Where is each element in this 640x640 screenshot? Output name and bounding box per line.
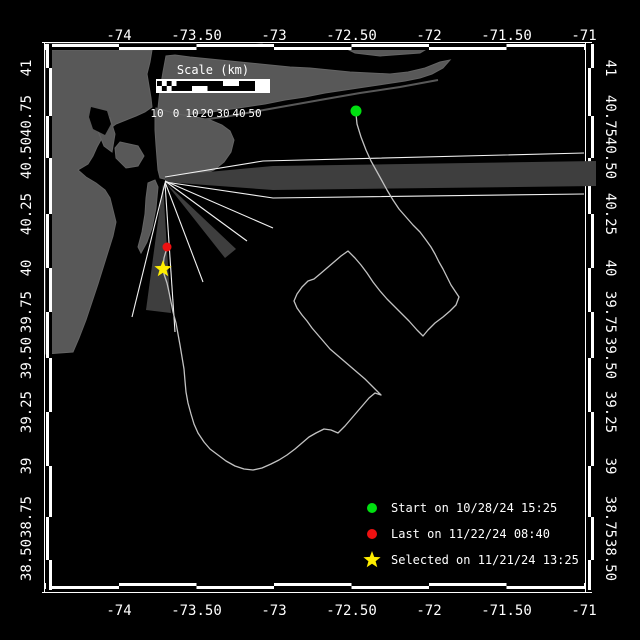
drifter-track-map[interactable]: -74-74-73.50-73.50-73-73-72.50-72.50-72-… [0, 0, 640, 640]
scale-bar-title: Scale (km) [177, 63, 249, 77]
legend-last-label: Last on 11/22/24 08:40 [391, 527, 550, 541]
start-position-marker[interactable] [351, 106, 362, 117]
legend-start-dot-icon[interactable] [367, 503, 377, 513]
lat-tick-label-left: 40.50 [19, 137, 35, 179]
legend: Start on 10/28/24 15:25 Last on 11/22/24… [363, 501, 578, 567]
last-position-marker[interactable] [163, 243, 172, 252]
lon-tick-label-top: -74 [106, 28, 131, 44]
lat-tick-label-right: 39.50 [602, 337, 618, 379]
lat-tick-label-left: 39.75 [19, 291, 35, 333]
lon-tick-label-top: -72 [416, 28, 441, 44]
lat-tick-label-right: 39.75 [602, 291, 618, 333]
scale-bar-tick-label: 40 [232, 107, 245, 120]
lon-tick-label-top: -72.50 [326, 28, 377, 44]
scale-bar-tick-label: 30 [216, 107, 229, 120]
lat-tick-label-left: 40.25 [19, 193, 35, 235]
lat-tick-label-right: 40.25 [602, 193, 618, 235]
lat-tick-label-right: 40.75 [602, 95, 618, 137]
lon-tick-label-top: -71.50 [481, 28, 532, 44]
lon-tick-label-bottom: -71 [571, 603, 596, 619]
lat-tick-label-right: 39.25 [602, 391, 618, 433]
lat-tick-label-left: 38.50 [19, 539, 35, 581]
scale-bar-tick-label: 10 [150, 107, 163, 120]
legend-last-dot-icon[interactable] [367, 529, 377, 539]
lon-tick-label-top: -73.50 [171, 28, 222, 44]
lat-tick-label-left: 39.50 [19, 337, 35, 379]
lat-tick-label-right: 40 [602, 260, 618, 277]
lon-tick-label-bottom: -73.50 [171, 603, 222, 619]
lon-tick-label-bottom: -72.50 [326, 603, 377, 619]
lat-tick-label-left: 39 [19, 458, 35, 475]
legend-start-label: Start on 10/28/24 15:25 [391, 501, 557, 515]
lat-tick-label-left: 38.75 [19, 496, 35, 538]
lat-tick-label-right: 41 [602, 60, 618, 77]
lon-tick-label-bottom: -72 [416, 603, 441, 619]
map-canvas[interactable]: -74-74-73.50-73.50-73-73-72.50-72.50-72-… [0, 0, 640, 640]
lon-tick-label-bottom: -71.50 [481, 603, 532, 619]
scale-bar-tick-label: 50 [248, 107, 261, 120]
scale-bar-tick-label: 20 [200, 107, 213, 120]
lon-tick-label-bottom: -73 [261, 603, 286, 619]
lon-tick-label-bottom: -74 [106, 603, 131, 619]
lat-tick-label-right: 38.75 [602, 496, 618, 538]
lat-tick-label-left: 40 [19, 260, 35, 277]
lat-tick-label-left: 39.25 [19, 391, 35, 433]
lat-tick-label-right: 39 [602, 458, 618, 475]
scale-bar-tick-label: 10 [185, 107, 198, 120]
lat-tick-label-right: 40.50 [602, 137, 618, 179]
lat-tick-label-right: 38.50 [602, 539, 618, 581]
legend-selected-label: Selected on 11/21/24 13:25 [391, 553, 579, 567]
lon-tick-label-top: -73 [261, 28, 286, 44]
scale-bar-tick-label: 0 [173, 107, 180, 120]
lat-tick-label-left: 41 [19, 60, 35, 77]
lon-tick-label-top: -71 [571, 28, 596, 44]
lat-tick-label-left: 40.75 [19, 95, 35, 137]
